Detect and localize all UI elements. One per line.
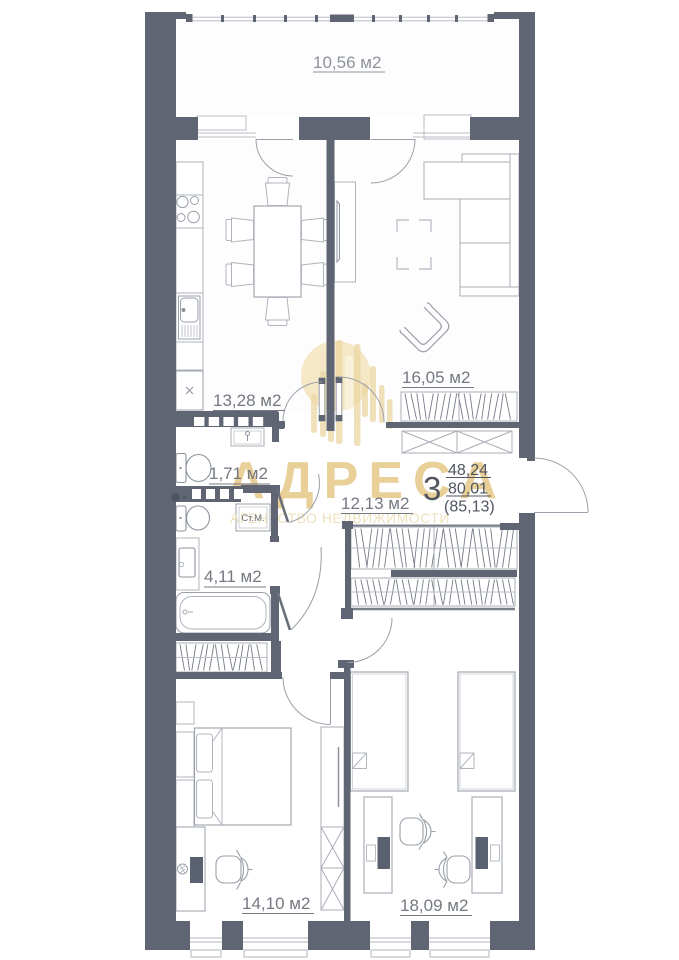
svg-text:14,10 м2: 14,10 м2 bbox=[242, 894, 310, 913]
svg-text:12,13 м2: 12,13 м2 bbox=[341, 494, 409, 513]
svg-text:13,28 м2: 13,28 м2 bbox=[213, 391, 281, 410]
svg-text:4,11 м2: 4,11 м2 bbox=[204, 567, 262, 586]
svg-text:48,24: 48,24 bbox=[448, 462, 488, 479]
svg-text:10,56 м2: 10,56 м2 bbox=[313, 53, 381, 72]
svg-text:3: 3 bbox=[423, 470, 441, 507]
svg-text:16,05 м2: 16,05 м2 bbox=[402, 368, 470, 387]
svg-text:Ст.М.: Ст.М. bbox=[241, 513, 264, 524]
svg-text:(85,13): (85,13) bbox=[444, 499, 495, 516]
svg-text:18,09 м2: 18,09 м2 bbox=[400, 896, 468, 915]
svg-text:1,71 м2: 1,71 м2 bbox=[209, 464, 268, 483]
svg-text:80,01: 80,01 bbox=[448, 481, 488, 498]
